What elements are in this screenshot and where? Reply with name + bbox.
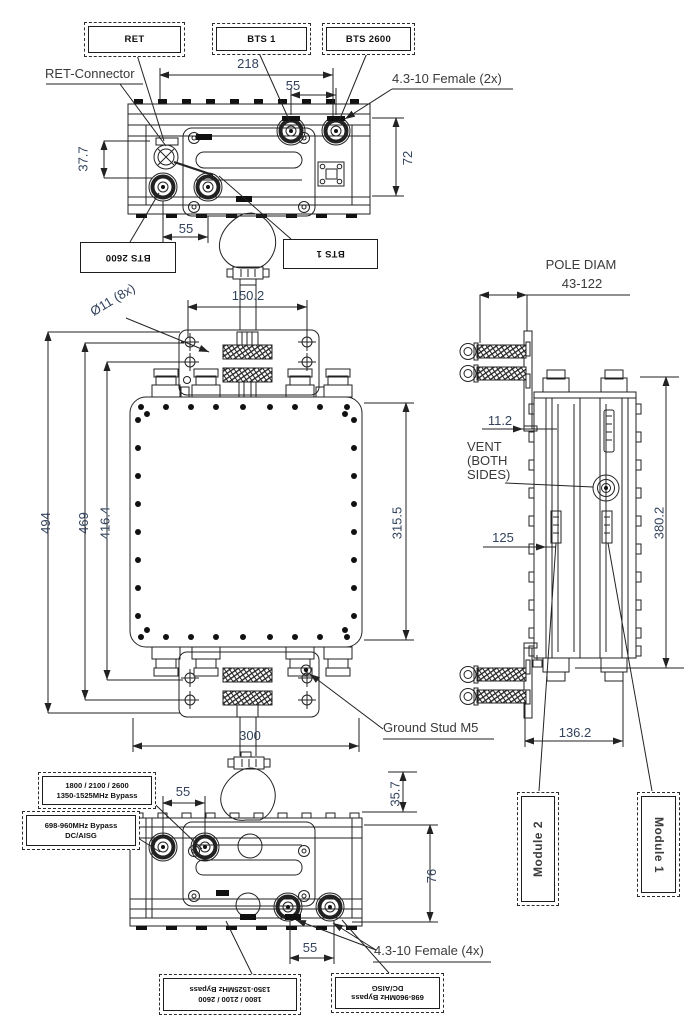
bypass-high-line2: 1350-1525MHz Bypass bbox=[56, 791, 137, 801]
dim-380-2: 380.2 bbox=[651, 500, 667, 546]
ret-label: RET bbox=[125, 34, 145, 45]
female-2x-note: 4.3-10 Female (2x) bbox=[392, 72, 502, 86]
bypass-low-line1: 698-960MHz Bypass bbox=[45, 821, 118, 831]
hose-clamp-icon bbox=[221, 752, 275, 820]
bottom-view-linework bbox=[130, 813, 362, 930]
bts1-flipped-label-box: BTS 1 bbox=[283, 239, 378, 269]
coax-connector-icon bbox=[149, 117, 350, 201]
bts2600-flipped-label-box: BTS 2600 bbox=[80, 242, 176, 273]
dim-55-top-b: 55 bbox=[172, 222, 200, 236]
bts2600-label-box: BTS 2600 bbox=[322, 23, 415, 55]
bypass-high-label-box: 1800 / 2100 / 2600 1350-1525MHz Bypass bbox=[38, 772, 156, 809]
pole-clamp-icon bbox=[460, 643, 542, 718]
pole-diam-range: 43-122 bbox=[544, 277, 620, 291]
dim-315-5: 315.5 bbox=[389, 500, 405, 546]
technical-drawing-sheet: RET BTS 1 BTS 2600 BTS 2600 BTS 1 1800 /… bbox=[0, 0, 687, 1018]
pole-diam-title: POLE DIAM bbox=[533, 258, 629, 272]
dim-300: 300 bbox=[230, 729, 270, 743]
bts1-label-box: BTS 1 bbox=[212, 23, 311, 55]
ret-label-box: RET bbox=[84, 22, 185, 57]
bypass-low-flipped-label-box: 698-960MHz Bypass DC/AISG bbox=[331, 973, 444, 1013]
bypass-high-flipped-line2: 1350-1525MHz Bypass bbox=[189, 985, 270, 995]
dim-150-2: 150.2 bbox=[222, 289, 274, 303]
dim-55-bottom-b: 55 bbox=[299, 941, 321, 955]
bypass-high-line1: 1800 / 2100 / 2600 bbox=[65, 781, 128, 791]
bypass-high-flipped-line1: 1800 / 2100 / 2600 bbox=[198, 995, 261, 1005]
dim-55-bottom-a: 55 bbox=[172, 785, 194, 799]
dim-218: 218 bbox=[230, 57, 266, 71]
dim-76: 76 bbox=[424, 861, 440, 891]
dim-125: 125 bbox=[488, 531, 518, 545]
dim-416-4: 416.4 bbox=[97, 500, 113, 546]
vent-note-line1: VENT bbox=[467, 440, 510, 454]
dim-136-2: 136.2 bbox=[552, 726, 598, 740]
module1-label-box: Module 1 bbox=[637, 792, 680, 897]
bypass-low-label-box: 698-960MHz Bypass DC/AISG bbox=[22, 811, 140, 850]
module1-label: Module 1 bbox=[652, 816, 666, 872]
module1-tag-icon bbox=[602, 511, 612, 543]
front-view-linework bbox=[130, 285, 362, 756]
dim-11-2: 11.2 bbox=[482, 414, 518, 428]
female-4x-note: 4.3-10 Female (4x) bbox=[374, 944, 484, 958]
ret-connector-note: RET-Connector bbox=[45, 67, 135, 81]
bypass-low-flipped-line2: DC/AISG bbox=[372, 984, 404, 994]
vent-note-line3: SIDES) bbox=[467, 468, 510, 482]
bts2600-label: BTS 2600 bbox=[346, 34, 391, 45]
top-view-linework bbox=[128, 99, 370, 218]
side-view-linework bbox=[460, 331, 641, 718]
dim-494: 494 bbox=[38, 503, 54, 543]
dim-72: 72 bbox=[400, 140, 416, 176]
module2-label-box: Module 2 bbox=[517, 792, 559, 906]
bts2600-flipped-label: BTS 2600 bbox=[105, 252, 150, 263]
hose-clamp-icon bbox=[219, 213, 275, 285]
vent-note: VENT (BOTH SIDES) bbox=[467, 440, 510, 482]
dim-37-7: 37.7 bbox=[76, 140, 92, 178]
module2-label: Module 2 bbox=[531, 821, 545, 877]
dim-55-top: 55 bbox=[283, 79, 303, 93]
dim-35-7: 35.7 bbox=[388, 774, 404, 814]
bts1-label: BTS 1 bbox=[247, 34, 275, 45]
vent-note-line2: (BOTH bbox=[467, 454, 510, 468]
bypass-low-flipped-line1: 698-960MHz Bypass bbox=[351, 993, 424, 1003]
bypass-high-flipped-label-box: 1800 / 2100 / 2600 1350-1525MHz Bypass bbox=[159, 974, 301, 1015]
ground-stud-note: Ground Stud M5 bbox=[383, 721, 478, 735]
bts1-flipped-label: BTS 1 bbox=[316, 249, 344, 260]
bypass-low-line2: DC/AISG bbox=[65, 831, 97, 841]
dim-469: 469 bbox=[76, 503, 92, 543]
